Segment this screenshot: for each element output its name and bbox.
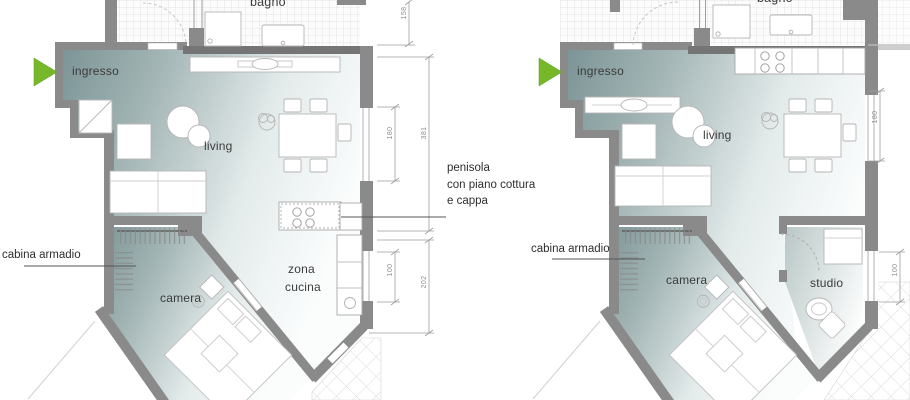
room-label-living-left: living — [204, 139, 233, 153]
right-ingresso-door-opening — [614, 43, 642, 50]
kitchen-cabinets-wall — [337, 235, 362, 315]
floor-plan-comparison: bagno ingresso living camera zona cucina… — [0, 0, 910, 400]
chair — [310, 159, 327, 172]
dimension-label-bagno-158: 158 — [400, 0, 410, 30]
chair — [284, 159, 301, 172]
callout-penisola-line3: e cappa — [447, 193, 535, 210]
room-label-living-right: living — [703, 128, 732, 142]
dining-table — [784, 114, 841, 157]
chair — [310, 99, 327, 112]
entrance-arrow-icon — [34, 58, 57, 86]
room-label-ingresso-right: ingresso — [577, 64, 624, 78]
room-label-camera-right: camera — [666, 273, 707, 287]
dimension-label-window-100-right: 100 — [891, 253, 901, 287]
room-label-zona-cucina-2: cucina — [285, 280, 321, 294]
right-plan — [533, 0, 910, 400]
left-plan — [24, 0, 446, 400]
callout-cabina-armadio-left: cabina armadio — [2, 247, 81, 264]
callout-penisola: penisola con piano cottura e cappa — [447, 160, 535, 210]
left-terrace-edge — [28, 321, 95, 399]
burner — [761, 64, 769, 72]
chair — [843, 124, 856, 141]
right-bagno-tiles-edge — [878, 0, 910, 45]
sink — [770, 15, 812, 35]
entrance-arrow-icon — [539, 58, 562, 86]
burner — [761, 52, 769, 60]
room-label-bagno-left: bagno — [250, 0, 286, 9]
dimension-label-window-180-left: 180 — [386, 116, 396, 150]
room-label-bagno-right: bagno — [757, 0, 793, 5]
shower — [713, 5, 750, 38]
shower — [205, 12, 241, 46]
burner — [776, 52, 784, 60]
studio-desk — [824, 229, 862, 264]
chair — [815, 99, 832, 112]
dimension-label-window-180-right: 180 — [871, 100, 881, 134]
burner — [306, 219, 314, 227]
dimension-label-window-100-left: 100 — [386, 253, 396, 287]
callout-penisola-line1: penisola — [447, 160, 535, 177]
sink — [262, 25, 304, 46]
armchair — [117, 124, 151, 159]
right-bagno-tiles — [560, 0, 865, 45]
dining-table — [279, 114, 336, 157]
callout-penisola-line2: con piano cottura — [447, 177, 535, 194]
chair — [338, 124, 351, 141]
burner — [776, 64, 784, 72]
dimension-label-kitchen-202: 202 — [420, 265, 430, 299]
dimension-label-total-381: 381 — [420, 116, 430, 150]
callout-cabina-armadio-right: cabina armadio — [531, 241, 610, 258]
room-label-camera-left: camera — [160, 291, 201, 305]
left-ingresso-door-opening — [148, 43, 177, 50]
right-terrace-edge — [533, 321, 600, 399]
room-label-studio: studio — [810, 276, 843, 290]
chair — [815, 159, 832, 172]
chair — [789, 99, 806, 112]
burner — [293, 219, 301, 227]
armchair — [622, 124, 656, 159]
room-label-zona-cucina-1: zona — [288, 262, 315, 276]
kitchen-counter — [735, 48, 865, 74]
room-label-ingresso-left: ingresso — [72, 64, 119, 78]
chair — [789, 159, 806, 172]
chair — [284, 99, 301, 112]
burner — [306, 208, 314, 216]
burner — [293, 208, 301, 216]
